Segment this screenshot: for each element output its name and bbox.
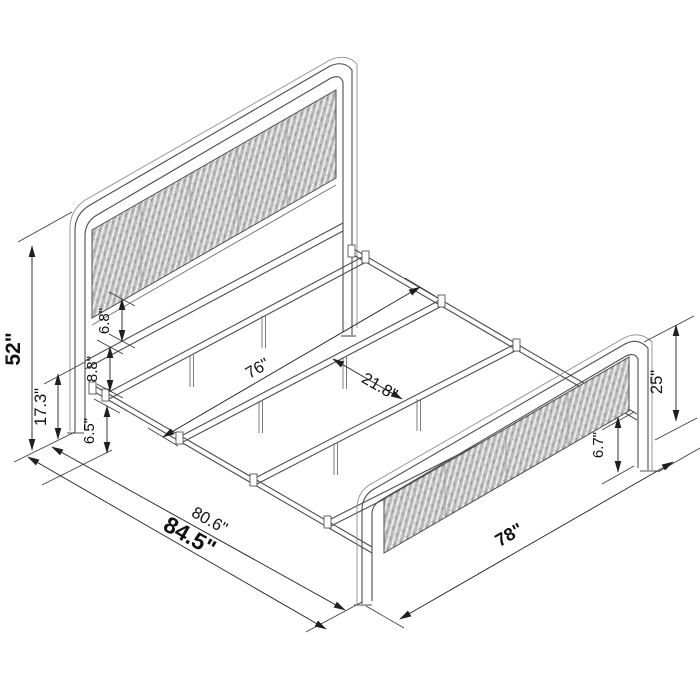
dim-label-footboard-width: 78" [492, 519, 527, 551]
headboard-cane-panel [92, 90, 336, 318]
footboard [354, 335, 657, 605]
dim-label-footboard-height: 25" [648, 370, 666, 394]
dimension-slat-length: 76" [148, 278, 435, 446]
dim-label-slat-length: 76" [243, 355, 273, 383]
dimension-rail-top-height: 17.3" [32, 362, 85, 439]
dim-label-slat-spacing: 21.8" [359, 369, 401, 404]
headboard [67, 57, 357, 433]
right-rail-bracket [348, 245, 355, 257]
dim-label-footboard-panel-gap: 6.7" [590, 432, 607, 458]
dim-label-under-clearance: 6.5" [81, 418, 98, 444]
dim-label-rail-top-height: 17.3" [32, 388, 50, 426]
dim-label-panel-to-rail: 6.8" [96, 308, 113, 334]
dimension-footboard-width: 78" [366, 448, 700, 628]
bed-frame-drawing: 52" 17.3" 8.8" 6.8" 6.5" [0, 0, 700, 700]
left-rail-bracket [89, 382, 96, 394]
dimension-overall-length: 84.5" [28, 457, 326, 629]
left-side-rail-edge [93, 391, 372, 553]
dim-label-rail-gap: 8.8" [84, 356, 101, 382]
bed-platform [89, 245, 637, 553]
dim-label-headboard-height: 52" [2, 332, 25, 365]
drawing-canvas: 52" 17.3" 8.8" 6.8" 6.5" [0, 0, 700, 700]
cross-slat-2 [176, 295, 445, 444]
